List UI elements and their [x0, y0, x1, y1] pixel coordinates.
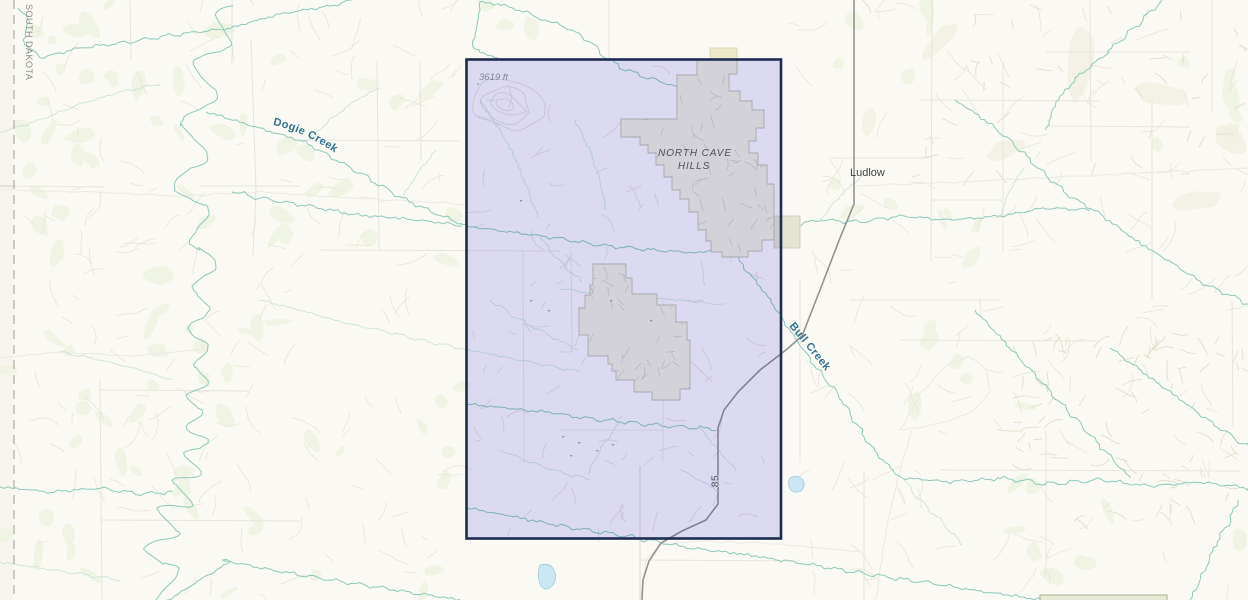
svg-text:Ludlow: Ludlow [850, 167, 885, 179]
svg-text:NORTH CAVE: NORTH CAVE [658, 148, 732, 159]
svg-text:85: 85 [711, 475, 722, 487]
svg-text:SOUTH DAKOTA: SOUTH DAKOTA [24, 4, 34, 80]
svg-text:3619 ft: 3619 ft [479, 72, 508, 83]
svg-text:HILLS: HILLS [678, 161, 710, 172]
